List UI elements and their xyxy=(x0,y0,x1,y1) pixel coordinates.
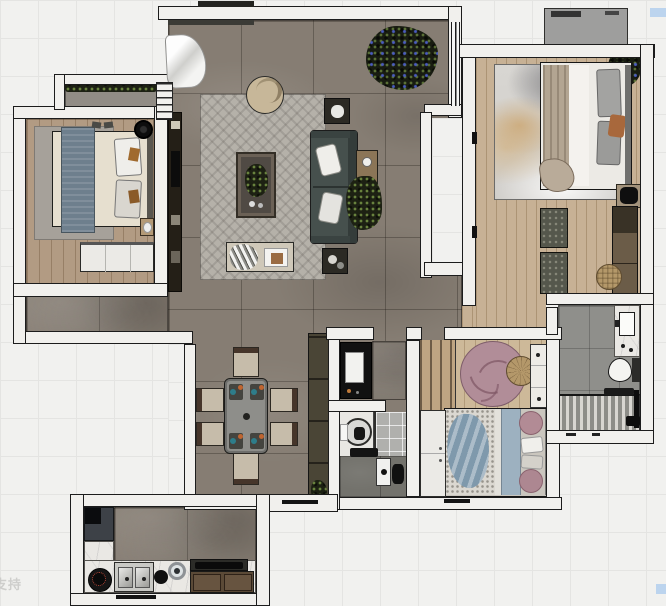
dining-table[interactable] xyxy=(224,378,268,454)
faucet xyxy=(615,320,619,327)
wall xyxy=(256,494,270,606)
bedroom-left-nightstand[interactable] xyxy=(140,218,154,236)
bedroom-left-bed[interactable] xyxy=(52,131,152,227)
desk-seam xyxy=(531,387,546,388)
sofa-pillow xyxy=(315,143,343,177)
wall xyxy=(70,494,84,606)
bed-pillow-orange xyxy=(608,114,627,138)
toilet-tank xyxy=(632,358,640,382)
wall xyxy=(455,44,655,58)
cup-decor xyxy=(328,255,337,264)
wall xyxy=(420,112,432,278)
shelf-item xyxy=(171,215,180,225)
nightstand-decor xyxy=(620,187,638,204)
exterior-notch xyxy=(432,118,462,262)
foot-bench[interactable] xyxy=(540,252,568,294)
shower-control xyxy=(381,469,387,475)
sofa-pillow xyxy=(317,191,343,224)
sink-basin xyxy=(135,567,150,588)
wardrobe-handle xyxy=(439,447,442,450)
pillow-pink-round xyxy=(519,411,543,435)
door-hinge-mark xyxy=(472,132,477,144)
door-leaf[interactable] xyxy=(546,307,558,335)
living-floor-sliver[interactable] xyxy=(26,295,168,332)
base-cabinets[interactable] xyxy=(190,571,254,593)
dining-chair-left[interactable] xyxy=(196,388,224,412)
dresser-seam xyxy=(105,245,106,272)
place-setting xyxy=(250,433,264,449)
bedroom-small-bed[interactable] xyxy=(444,408,548,497)
selection-artifact xyxy=(656,584,666,594)
tray xyxy=(143,222,152,233)
wall-mark xyxy=(566,433,576,436)
tv xyxy=(171,151,180,187)
pot xyxy=(168,562,186,580)
tray-item xyxy=(271,253,283,264)
shower-head xyxy=(626,416,640,426)
slipper xyxy=(104,122,114,129)
toilet-bowl xyxy=(608,358,632,382)
bed-band-blue xyxy=(501,409,521,495)
door-hinge-mark xyxy=(472,226,477,238)
centerpiece xyxy=(243,413,250,420)
sofa-armrest-top xyxy=(311,131,350,138)
pillow-white xyxy=(520,436,544,454)
pillow-pink-round xyxy=(519,469,543,493)
wall xyxy=(158,6,462,20)
floorplan-canvas: 支持 xyxy=(0,0,666,606)
bath-bar xyxy=(350,448,378,457)
curtain-rod xyxy=(168,20,254,25)
dining-chair-right[interactable] xyxy=(270,388,298,412)
door-sill xyxy=(444,499,470,503)
bed-pillow-gray xyxy=(596,69,622,118)
side-table-top[interactable] xyxy=(324,98,350,124)
side-table-bottom[interactable] xyxy=(322,248,348,274)
wall xyxy=(546,293,654,305)
wall xyxy=(184,344,196,500)
wall xyxy=(54,74,65,110)
foot-bench[interactable] xyxy=(540,208,568,248)
exterior-patch xyxy=(168,344,184,497)
wall xyxy=(328,339,340,510)
place-setting xyxy=(229,433,243,449)
wall xyxy=(13,106,163,119)
drying-rack[interactable] xyxy=(156,82,173,120)
ceiling-fan[interactable] xyxy=(134,120,153,139)
cabinet-door xyxy=(224,574,252,591)
desk-item xyxy=(537,397,541,401)
vanity-item xyxy=(621,344,625,348)
sideboard[interactable] xyxy=(308,333,330,505)
dining-chair-bottom[interactable] xyxy=(233,453,259,485)
wall xyxy=(70,494,270,507)
sofa-armrest-bottom xyxy=(311,236,350,243)
bench-throw xyxy=(229,243,260,272)
round-armchair[interactable] xyxy=(246,76,284,114)
cabinet-panel xyxy=(345,352,364,383)
striped-wardrobe[interactable] xyxy=(420,340,456,412)
wall xyxy=(70,593,270,606)
bench[interactable] xyxy=(226,242,294,272)
gas-burner[interactable] xyxy=(88,568,112,592)
table-decor xyxy=(258,203,263,208)
wall xyxy=(13,106,26,344)
kitchen-door-sill xyxy=(116,595,156,599)
master-nightstand[interactable] xyxy=(616,184,642,208)
toilet[interactable] xyxy=(608,356,640,384)
wardrobe-section xyxy=(613,207,637,233)
kettle xyxy=(154,570,168,584)
flower-decor xyxy=(331,105,344,118)
wall xyxy=(444,327,562,340)
storage-room-floor[interactable] xyxy=(372,341,406,400)
vanity-item xyxy=(629,348,633,352)
shower-panel[interactable] xyxy=(376,458,391,486)
shelf-item xyxy=(171,251,180,263)
vanity-shelf xyxy=(340,424,348,441)
storage-cabinet[interactable] xyxy=(340,342,372,399)
fridge[interactable] xyxy=(84,507,114,541)
wall xyxy=(462,44,476,306)
wall xyxy=(13,283,168,297)
basin xyxy=(619,312,635,336)
cooktop[interactable] xyxy=(190,559,248,571)
burner-ring xyxy=(92,572,106,586)
bath-mat xyxy=(604,388,634,395)
sofa-cushion-seam xyxy=(313,186,350,188)
entry-door-sill xyxy=(282,500,318,504)
dining-chair-right[interactable] xyxy=(270,422,298,446)
console-plant[interactable] xyxy=(346,176,382,230)
wall xyxy=(154,106,168,297)
wall xyxy=(406,327,422,340)
wardrobe-handle xyxy=(439,459,442,462)
accent-pillow-orange xyxy=(128,189,140,203)
wall-lintel-mark xyxy=(198,1,254,7)
dining-chair-left[interactable] xyxy=(196,422,224,446)
dining-chair-top[interactable] xyxy=(233,347,259,377)
cup-decor xyxy=(337,262,344,269)
wardrobe-white[interactable] xyxy=(420,410,446,497)
bathroom-small-tiles xyxy=(374,412,406,456)
headboard xyxy=(625,65,631,187)
table-plant xyxy=(245,164,268,197)
wall xyxy=(13,331,193,344)
table-decor xyxy=(249,201,255,207)
wardrobe-seam xyxy=(421,453,445,454)
desk-item xyxy=(536,353,540,357)
pillow-gray xyxy=(521,454,544,470)
fridge-corner xyxy=(85,508,101,524)
media-wall-unit[interactable] xyxy=(168,112,182,292)
cup-decor xyxy=(362,157,372,167)
wall xyxy=(640,44,654,444)
dresser-seam xyxy=(130,245,131,272)
shelf-item xyxy=(171,121,180,129)
wall-mark xyxy=(592,433,600,436)
window[interactable] xyxy=(451,22,460,106)
double-sink[interactable] xyxy=(114,562,154,592)
hallway-door-opening[interactable] xyxy=(462,306,476,329)
wall xyxy=(328,400,386,412)
bed-runner-blue xyxy=(61,127,95,233)
round-basin[interactable] xyxy=(344,418,372,446)
coffee-table[interactable] xyxy=(236,152,276,218)
bathroom-vanity[interactable] xyxy=(614,305,640,357)
wall xyxy=(546,335,560,510)
ac-vent xyxy=(605,11,619,15)
shower-fixture xyxy=(392,464,404,484)
watermark-text: 支持 xyxy=(0,574,22,593)
wall xyxy=(326,327,374,340)
desk-seam xyxy=(531,365,546,366)
cabinet-knob xyxy=(356,391,359,394)
basin-faucet xyxy=(354,427,365,440)
kitchen-floor[interactable] xyxy=(114,507,256,562)
ac-vent xyxy=(551,11,581,17)
place-setting xyxy=(229,384,243,400)
cooktop-glass xyxy=(195,562,243,569)
dresser-white[interactable] xyxy=(80,242,154,272)
wall xyxy=(546,430,654,444)
cabinet-door xyxy=(193,574,221,591)
slipper xyxy=(92,121,102,128)
cabinet-knob xyxy=(347,389,351,393)
ac-unit[interactable] xyxy=(544,8,628,46)
place-setting xyxy=(250,384,264,400)
hallway-wood-floor[interactable] xyxy=(476,293,546,329)
wall xyxy=(406,340,420,497)
wardrobe-seam xyxy=(613,263,637,264)
selection-artifact xyxy=(650,8,666,17)
bench-tray xyxy=(264,248,288,267)
woven-pouf[interactable] xyxy=(596,264,622,290)
sink-basin xyxy=(118,567,133,588)
bed-duvet-fold xyxy=(569,65,589,186)
desk-white[interactable] xyxy=(530,344,547,408)
headboard xyxy=(147,132,153,228)
